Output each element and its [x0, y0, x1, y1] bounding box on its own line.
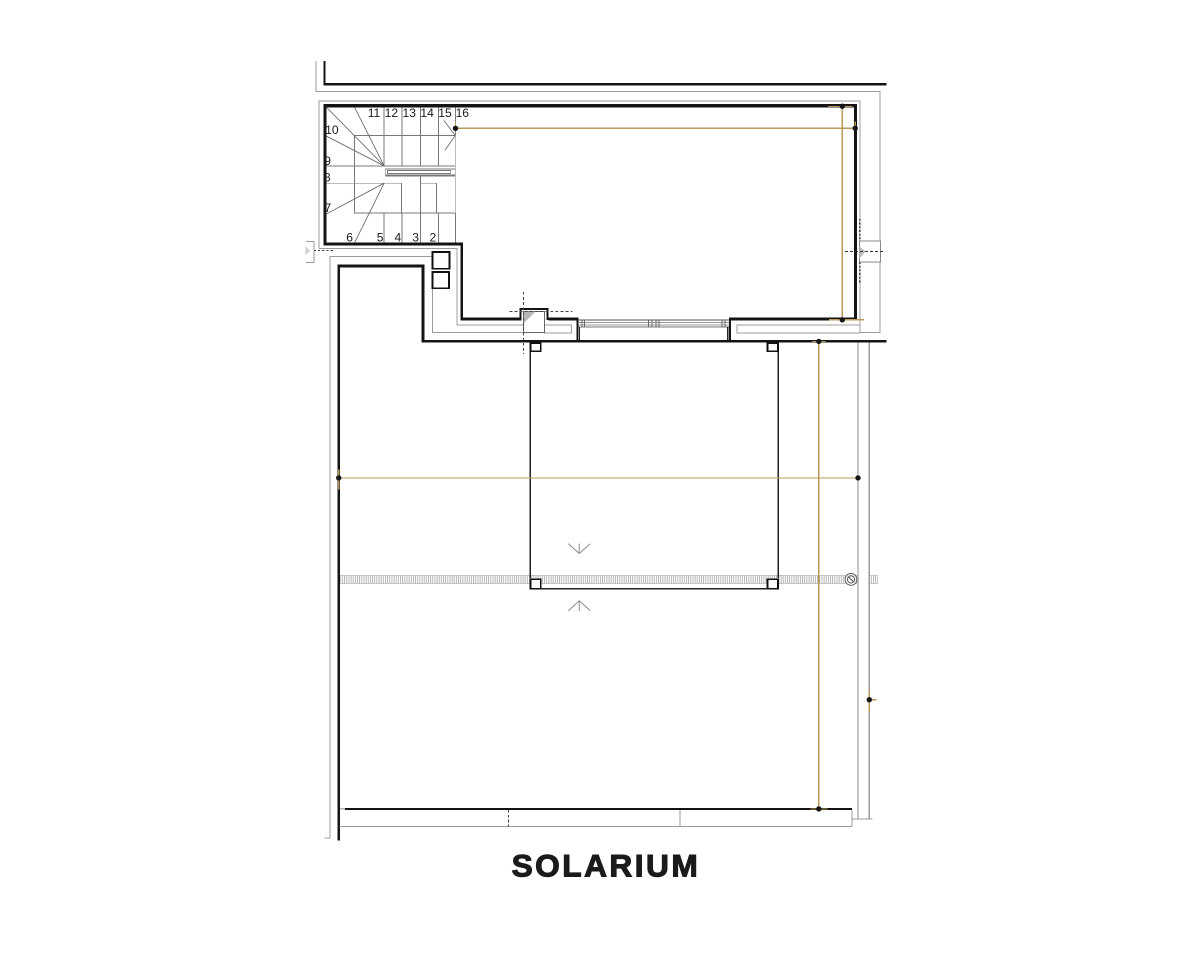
- svg-text:11: 11: [368, 106, 381, 120]
- svg-text:10: 10: [325, 123, 339, 137]
- svg-text:9: 9: [324, 154, 331, 168]
- svg-text:4: 4: [395, 231, 402, 245]
- svg-text:16: 16: [456, 106, 470, 120]
- svg-text:15: 15: [438, 106, 452, 120]
- svg-text:12: 12: [385, 106, 399, 120]
- svg-text:3: 3: [412, 231, 419, 245]
- svg-text:7: 7: [325, 201, 332, 215]
- svg-text:8: 8: [324, 171, 331, 185]
- svg-text:2: 2: [430, 231, 437, 245]
- svg-text:SOLARIUM: SOLARIUM: [512, 848, 701, 884]
- svg-text:13: 13: [402, 106, 416, 120]
- svg-text:6: 6: [346, 231, 353, 245]
- svg-text:14: 14: [420, 106, 434, 120]
- svg-text:5: 5: [377, 231, 384, 245]
